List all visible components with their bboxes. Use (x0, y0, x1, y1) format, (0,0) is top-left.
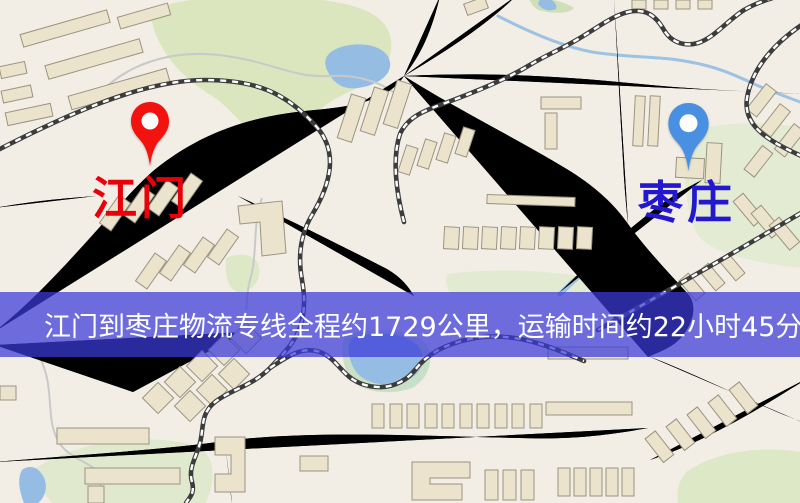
origin-pin[interactable] (130, 100, 170, 168)
destination-label: 枣庄 (638, 180, 736, 225)
map-pin-icon (667, 102, 710, 172)
map-image (0, 0, 800, 503)
route-info-banner: 江门到枣庄物流专线全程约1729公里，运输时间约22小时45分钟. (0, 292, 800, 357)
destination-pin[interactable] (667, 102, 710, 172)
map-pin-icon (130, 100, 170, 168)
map-screenshot: 江门 枣庄 江门到枣庄物流专线全程约1729公里，运输时间约22小时45分钟. (0, 0, 800, 503)
route-info-text: 江门到枣庄物流专线全程约1729公里，运输时间约22小时45分钟. (44, 305, 800, 344)
origin-label: 江门 (92, 176, 190, 221)
